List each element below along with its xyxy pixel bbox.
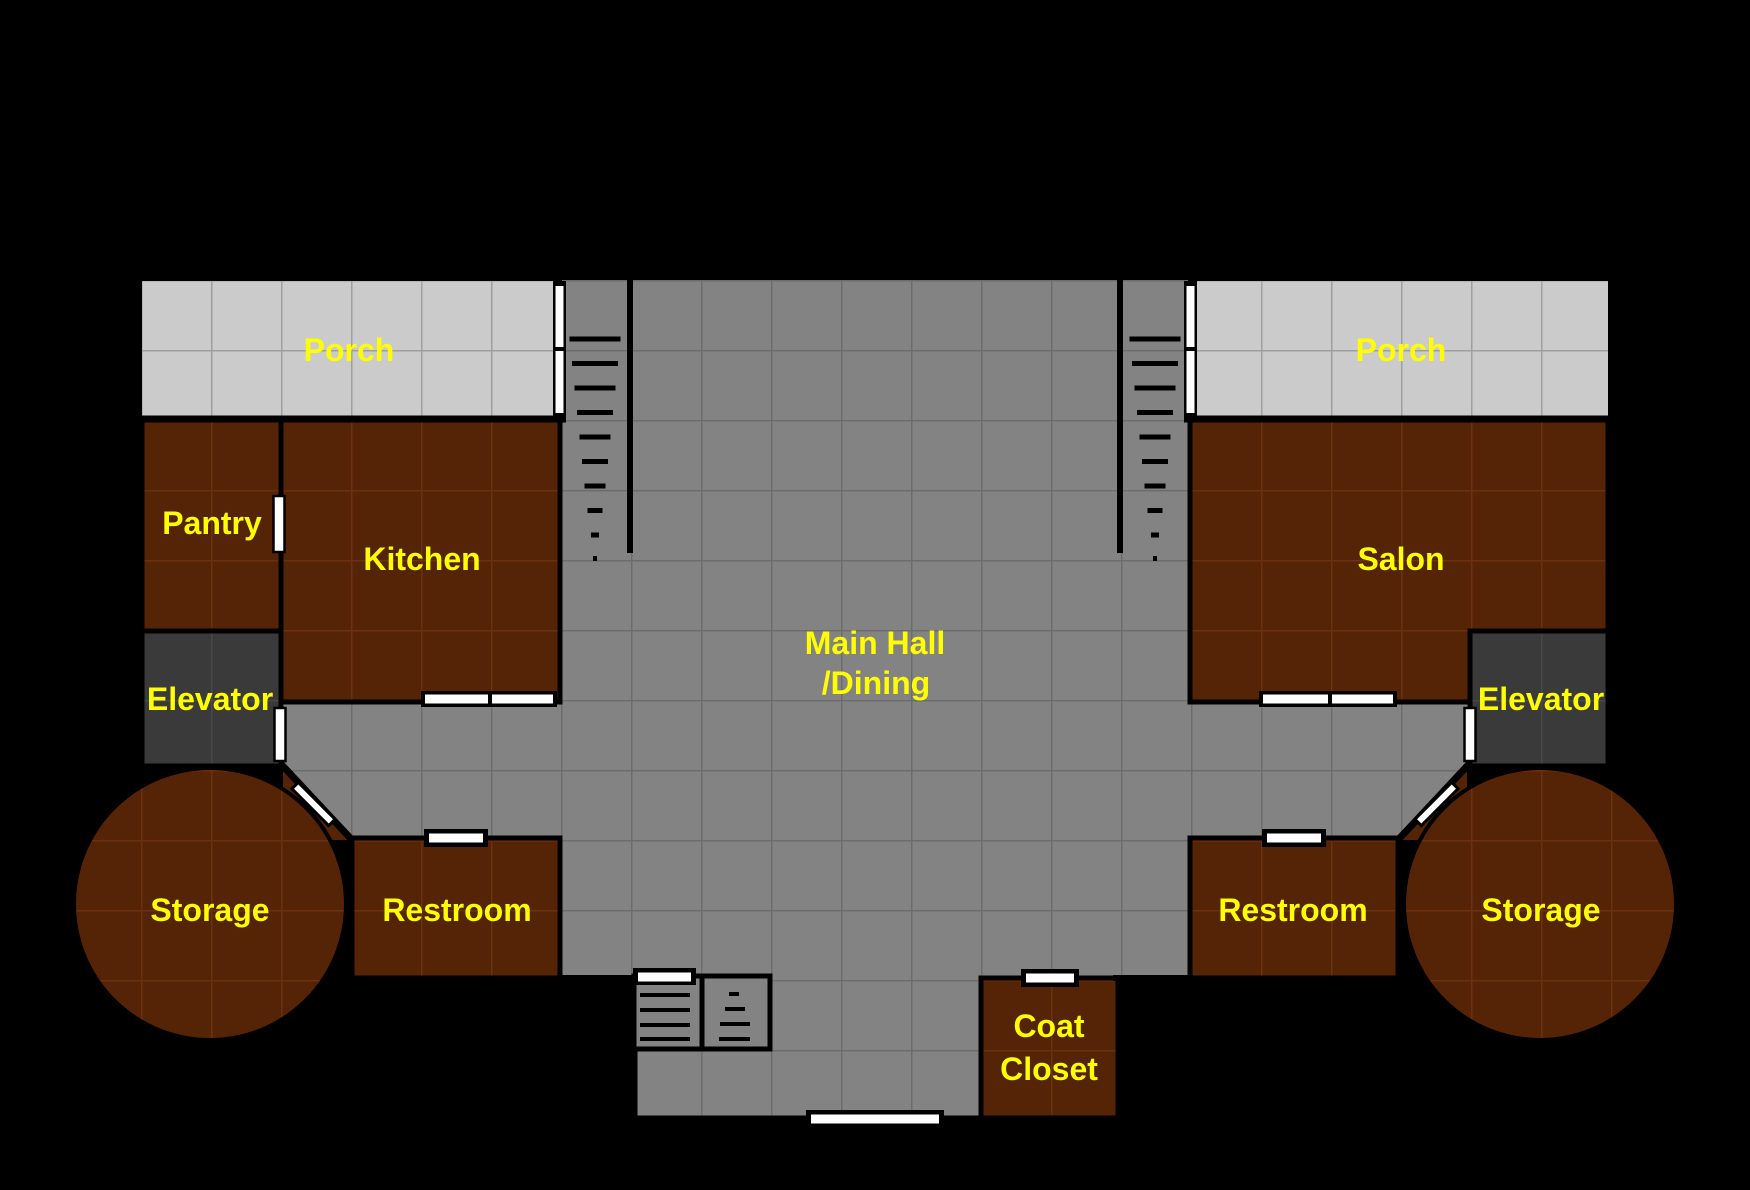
door-porch-right-upper <box>1187 286 1195 347</box>
label-salon: Salon <box>1357 541 1444 577</box>
door-cabinet <box>638 973 691 982</box>
label-elevator-left: Elevator <box>147 681 273 717</box>
label-restroom-right: Restroom <box>1218 892 1367 928</box>
door-coat-closet <box>1026 974 1074 983</box>
door-porch-left-lower <box>556 351 564 413</box>
floor-plan-canvas: Porch Porch Pantry Kitchen Salon Elevato… <box>0 0 1750 1190</box>
room-coat-closet <box>981 978 1118 1119</box>
door-main-entrance <box>811 1115 939 1124</box>
door-porch-left-upper <box>556 286 564 347</box>
label-restroom-left: Restroom <box>382 892 531 928</box>
door-elevator-left <box>275 708 286 761</box>
door-restroom-left <box>429 834 483 843</box>
label-pantry: Pantry <box>162 505 262 541</box>
door-porch-right-lower <box>1187 351 1195 413</box>
door-salon-b <box>1332 695 1393 704</box>
door-pantry <box>274 496 285 552</box>
label-storage-right: Storage <box>1481 892 1600 928</box>
label-elevator-right: Elevator <box>1478 681 1604 717</box>
door-kitchen-b <box>492 695 553 704</box>
label-main-hall-line1: Main Hall <box>805 625 945 661</box>
label-porch-left: Porch <box>304 332 395 368</box>
label-main-hall-line2: /Dining <box>822 665 930 701</box>
door-elevator-right <box>1465 708 1476 761</box>
floor-plan: Porch Porch Pantry Kitchen Salon Elevato… <box>0 0 1750 1190</box>
label-storage-left: Storage <box>150 892 269 928</box>
door-salon-a <box>1263 695 1328 704</box>
label-kitchen: Kitchen <box>363 541 480 577</box>
label-porch-right: Porch <box>1356 332 1447 368</box>
door-restroom-right <box>1267 834 1321 843</box>
door-kitchen-a <box>425 695 488 704</box>
label-coat-closet-line1: Coat <box>1013 1008 1084 1044</box>
label-coat-closet-line2: Closet <box>1000 1051 1098 1087</box>
cabinets <box>634 976 770 1049</box>
